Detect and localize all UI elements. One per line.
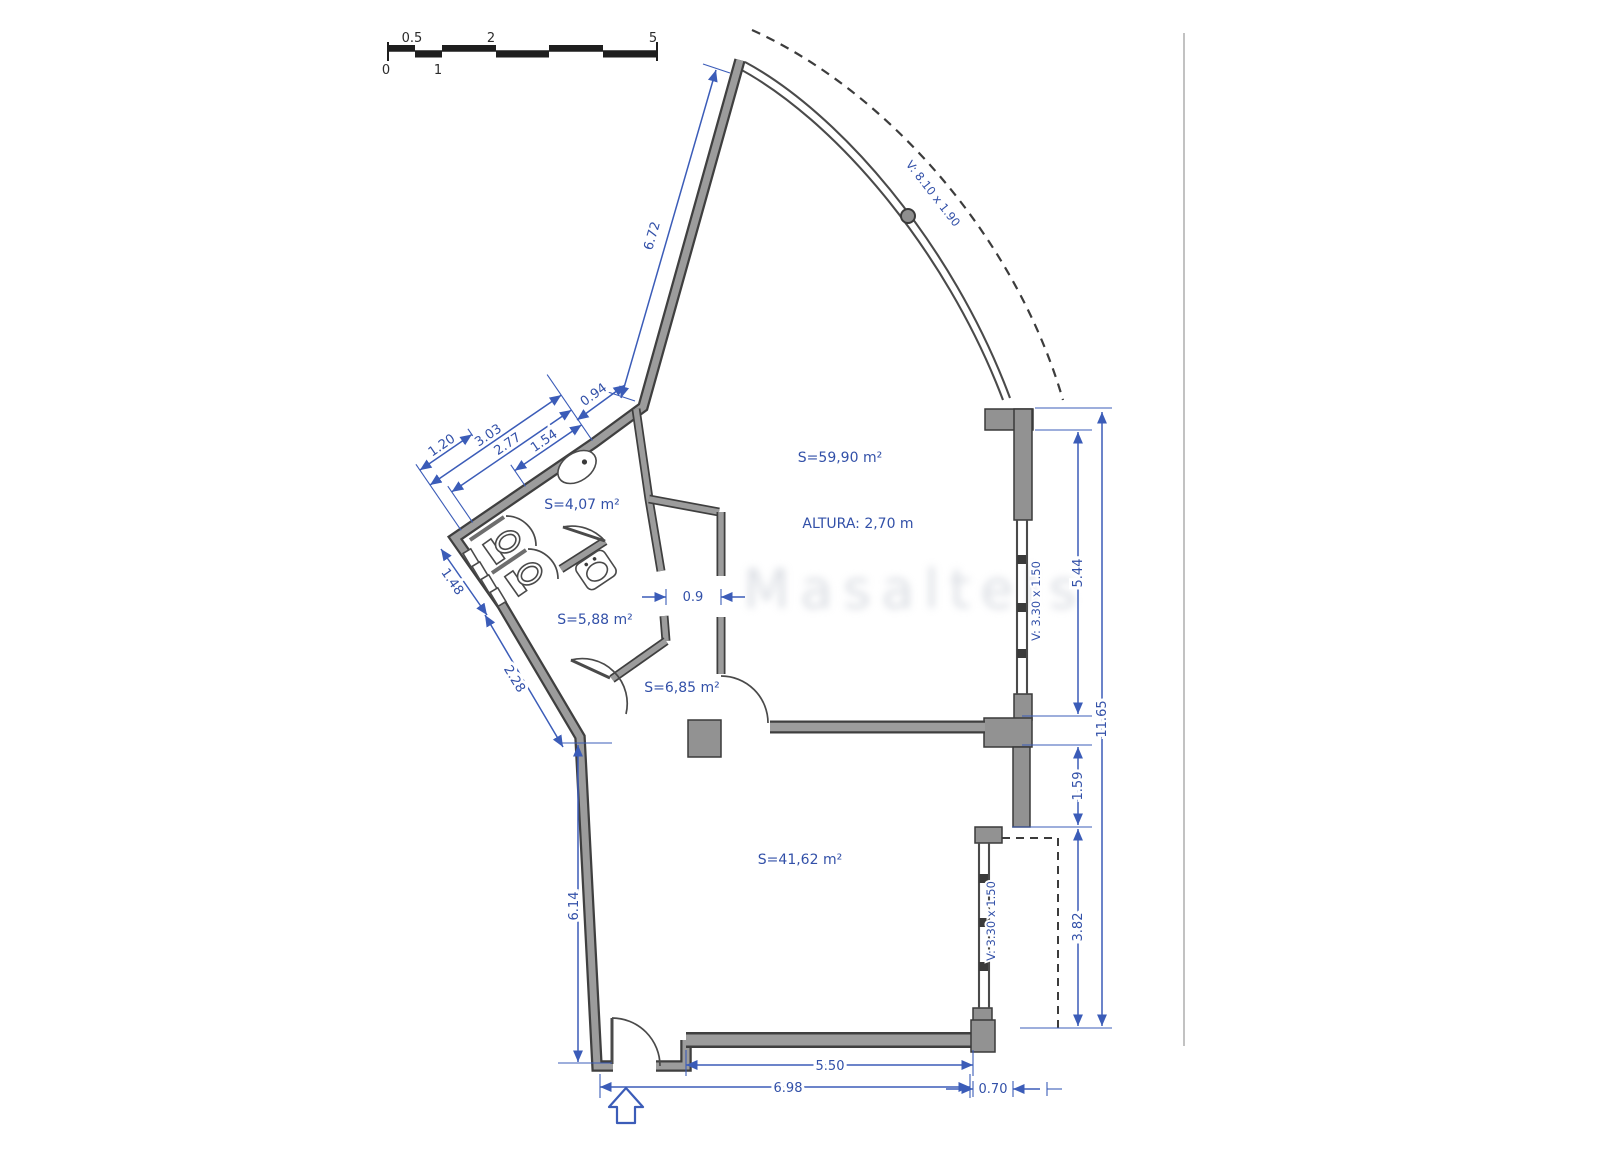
curved-window-inner-line — [738, 68, 1003, 400]
scale-label-5: 5 — [649, 31, 657, 46]
room-labels: S=59,90 m² ALTURA: 2,70 m S=4,07 m² S=5,… — [544, 450, 913, 868]
dim-label-09: 0.9 — [683, 590, 704, 605]
dim-jog: 0.94 — [577, 381, 625, 420]
floor-plan-drawing: Masaltels 0 0.5 1 2 5 — [0, 0, 1600, 1170]
dim-bottom-right: 0.70 — [946, 1081, 1062, 1097]
window-mullion — [1017, 603, 1026, 612]
dashed-terrace-outline — [1002, 838, 1058, 1028]
dim-label-070: 0.70 — [979, 1082, 1008, 1097]
floor-plan-page: Masaltels 0 0.5 1 2 5 — [0, 0, 1600, 1170]
window-mullion — [979, 962, 988, 971]
right-wall-upper — [1014, 409, 1032, 520]
radiator-box — [490, 588, 506, 606]
scale-label-2: 2 — [487, 31, 495, 46]
right-wall-jog — [984, 718, 1032, 747]
wc-right-wall — [636, 409, 661, 571]
room-label-hall: S=6,85 m² — [644, 680, 720, 696]
window-mullion — [1017, 555, 1026, 564]
room-label-bath: S=5,88 m² — [557, 612, 633, 628]
doors — [506, 516, 768, 1066]
room-label-lower: S=41,62 m² — [758, 852, 842, 868]
scale-bar-segment — [415, 51, 442, 58]
wc-door-leaf — [563, 527, 605, 541]
column-circle — [901, 209, 915, 223]
dim-label-1165: 11.65 — [1095, 700, 1110, 737]
dim-label-382: 3.82 — [1071, 913, 1086, 942]
scale-bar: 0 0.5 1 2 5 — [382, 31, 657, 78]
hall-door-leaf — [571, 660, 610, 678]
bath-right-wall — [664, 616, 666, 641]
dim-bottom-outer: 6.98 — [600, 1074, 970, 1098]
scale-label-05: 0.5 — [402, 31, 423, 46]
room-label-main: S=59,90 m² — [798, 450, 882, 466]
dim-label-154: 1.54 — [528, 427, 560, 456]
scale-bar-segment — [603, 51, 657, 58]
scale-label-0: 0 — [382, 63, 390, 78]
toilet — [483, 525, 525, 565]
curved-window-wall — [738, 62, 1010, 400]
scale-bar-segment — [496, 51, 549, 58]
dim-ext — [608, 392, 635, 401]
interior-column — [688, 720, 721, 757]
lower-window-top-pier — [975, 827, 1002, 843]
scale-label-1: 1 — [434, 63, 442, 78]
entrance-door-arc — [612, 1018, 660, 1066]
dim-hall-door: 0.9 — [642, 589, 745, 605]
dim-label-094: 0.94 — [578, 381, 610, 410]
window-label-right-lower: V: 3.30 x 1.50 — [984, 881, 998, 961]
window-label-right-upper: V: 3.30 x 1.50 — [1029, 561, 1043, 641]
dim-ext — [416, 464, 461, 530]
radiator — [490, 588, 506, 606]
dim-bottom-inner: 5.50 — [686, 1050, 973, 1076]
dim-label-672: 6.72 — [641, 220, 663, 252]
room-label-wc: S=4,07 m² — [544, 497, 620, 513]
dim-label-544: 5.44 — [1071, 559, 1086, 588]
dim-line — [621, 70, 716, 398]
scale-bar-segment — [549, 45, 603, 52]
bath-bottom-wall — [612, 641, 666, 679]
dim-label-120: 1.20 — [426, 431, 458, 460]
room-label-altura: ALTURA: 2,70 m — [802, 516, 913, 532]
dim-label-148: 1.48 — [437, 566, 466, 598]
entrance-arrow-icon — [609, 1088, 643, 1123]
bottom-right-pier — [971, 1020, 995, 1052]
right-wall-lower — [1013, 747, 1030, 827]
dim-label-159: 1.59 — [1071, 772, 1086, 801]
dim-label-550: 5.50 — [816, 1059, 845, 1074]
dim-label-614: 6.14 — [567, 892, 582, 921]
hall-door-arc — [571, 659, 627, 714]
toilet — [505, 557, 547, 597]
dim-diag-wall: 6.72 — [608, 64, 730, 401]
window-mullion — [1017, 649, 1026, 658]
dim-label-698: 6.98 — [774, 1081, 803, 1096]
dim-label-228: 2.28 — [500, 663, 528, 696]
hall-to-lower-door-arc — [721, 676, 768, 723]
dim-ext — [703, 64, 730, 73]
